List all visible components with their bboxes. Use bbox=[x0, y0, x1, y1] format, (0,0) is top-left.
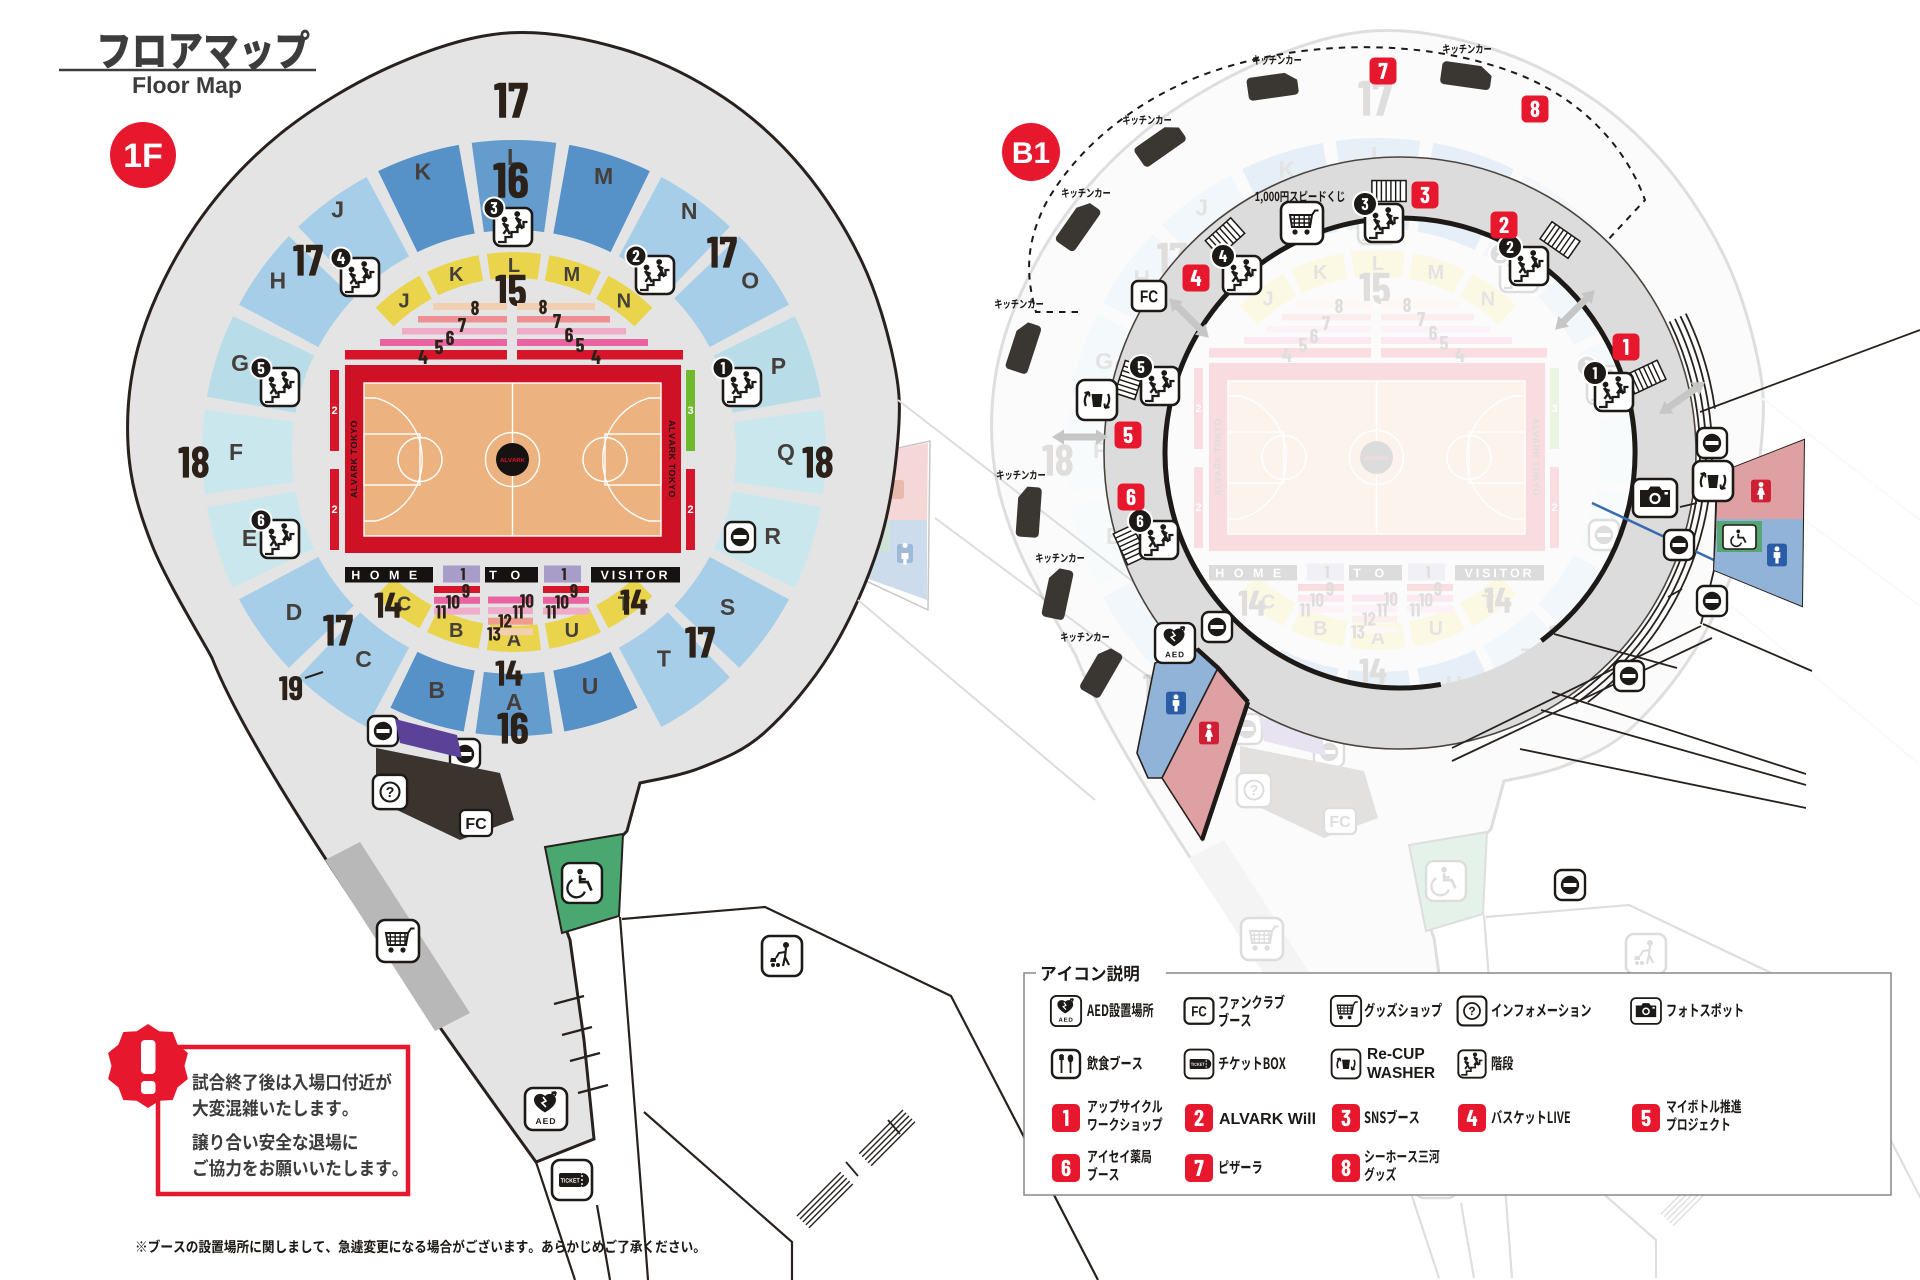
svg-text:ALVARK Will: ALVARK Will bbox=[1219, 1111, 1316, 1128]
svg-text:WASHER: WASHER bbox=[1367, 1065, 1435, 1082]
svg-text:Re-CUP: Re-CUP bbox=[1367, 1046, 1425, 1063]
